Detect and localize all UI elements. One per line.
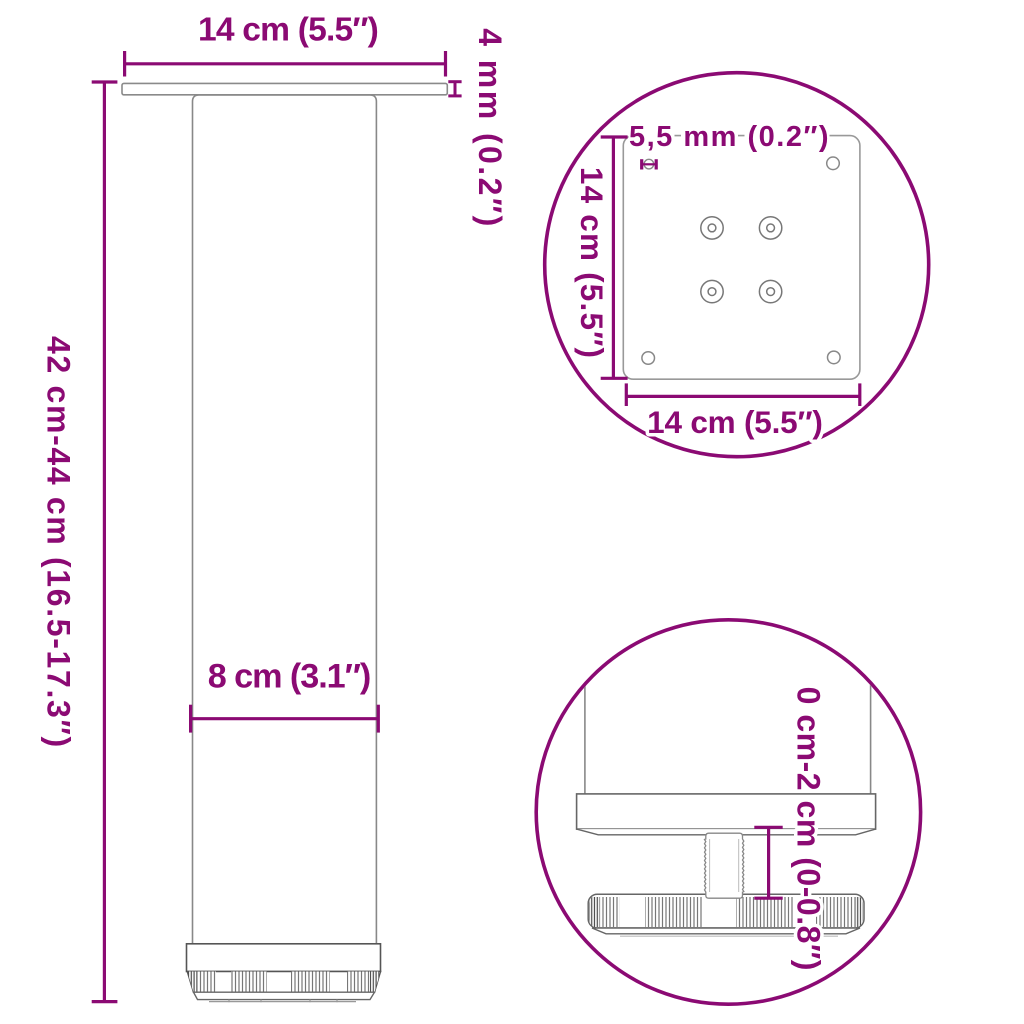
svg-text:4 mm (0.2″): 4 mm (0.2″) bbox=[472, 28, 508, 229]
svg-text:14 cm (5.5″): 14 cm (5.5″) bbox=[198, 12, 378, 49]
svg-text:5,5 mm (0.2″): 5,5 mm (0.2″) bbox=[629, 121, 830, 153]
svg-text:14 cm (5.5″): 14 cm (5.5″) bbox=[647, 404, 823, 440]
svg-text:14 cm (5.5″): 14 cm (5.5″) bbox=[574, 167, 610, 359]
svg-text:42 cm-44 cm (16.5-17.3″): 42 cm-44 cm (16.5-17.3″) bbox=[41, 336, 77, 749]
svg-text:0 cm-2 cm (0-0.8″): 0 cm-2 cm (0-0.8″) bbox=[791, 687, 827, 971]
svg-text:8 cm (3.1″): 8 cm (3.1″) bbox=[208, 658, 371, 696]
